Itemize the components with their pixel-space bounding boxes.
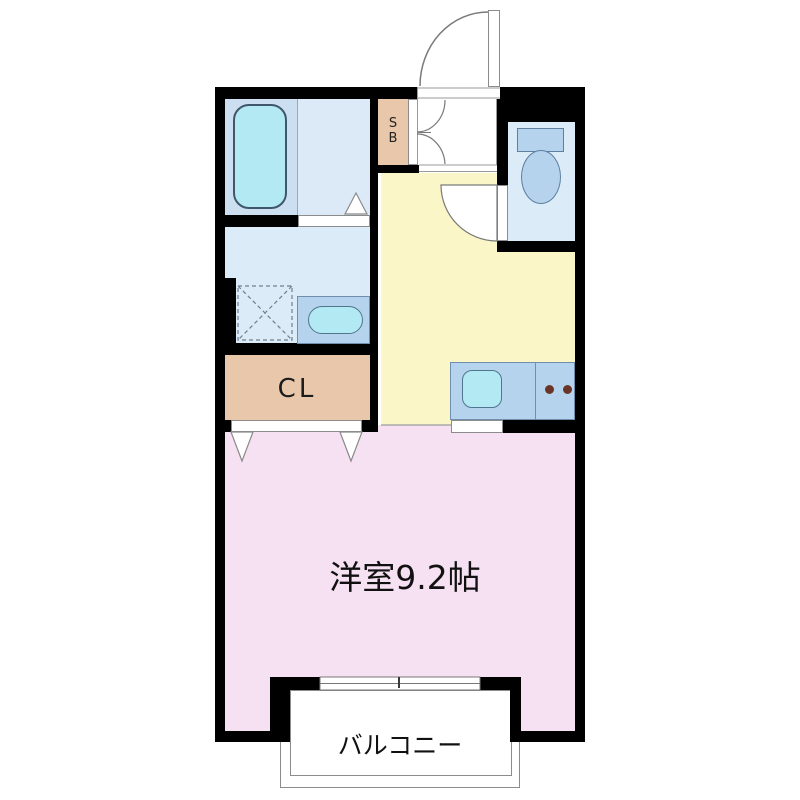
bathroom-door-triangle: [345, 193, 367, 214]
shoebox-door-arc-top: [417, 100, 445, 132]
balcony-label: バルコニー: [300, 726, 500, 762]
entrance-door-swing-arc: [420, 12, 488, 86]
shoebox-door-arc-bottom: [417, 134, 445, 164]
shoe-box-label-s: S: [389, 117, 397, 132]
shoe-box-label: S B: [378, 99, 408, 165]
floor-plan: 洋室9.2帖 バルコニー CL S B: [0, 0, 800, 800]
shoe-box-label-b: B: [389, 132, 398, 147]
western-room-label: 洋室9.2帖: [255, 551, 555, 599]
toilet-door-swing: [441, 185, 497, 241]
closet-door-triangle-left: [231, 432, 253, 461]
closet-label: CL: [262, 374, 332, 404]
washing-machine-pan: [238, 286, 292, 340]
closet-door-triangle-right: [340, 432, 362, 461]
sliding-window: [320, 677, 480, 690]
